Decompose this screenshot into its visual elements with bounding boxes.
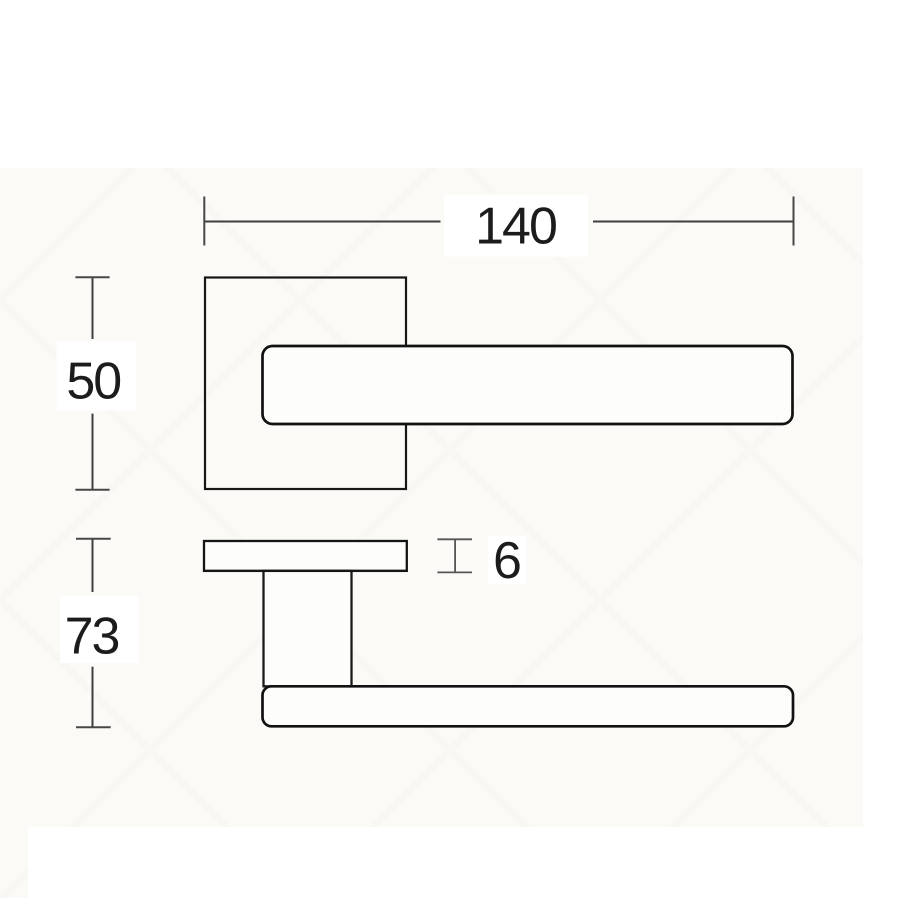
svg-text:140: 140 <box>475 198 556 256</box>
svg-text:50: 50 <box>66 353 120 411</box>
svg-text:6: 6 <box>493 532 522 590</box>
svg-text:73: 73 <box>65 607 119 665</box>
